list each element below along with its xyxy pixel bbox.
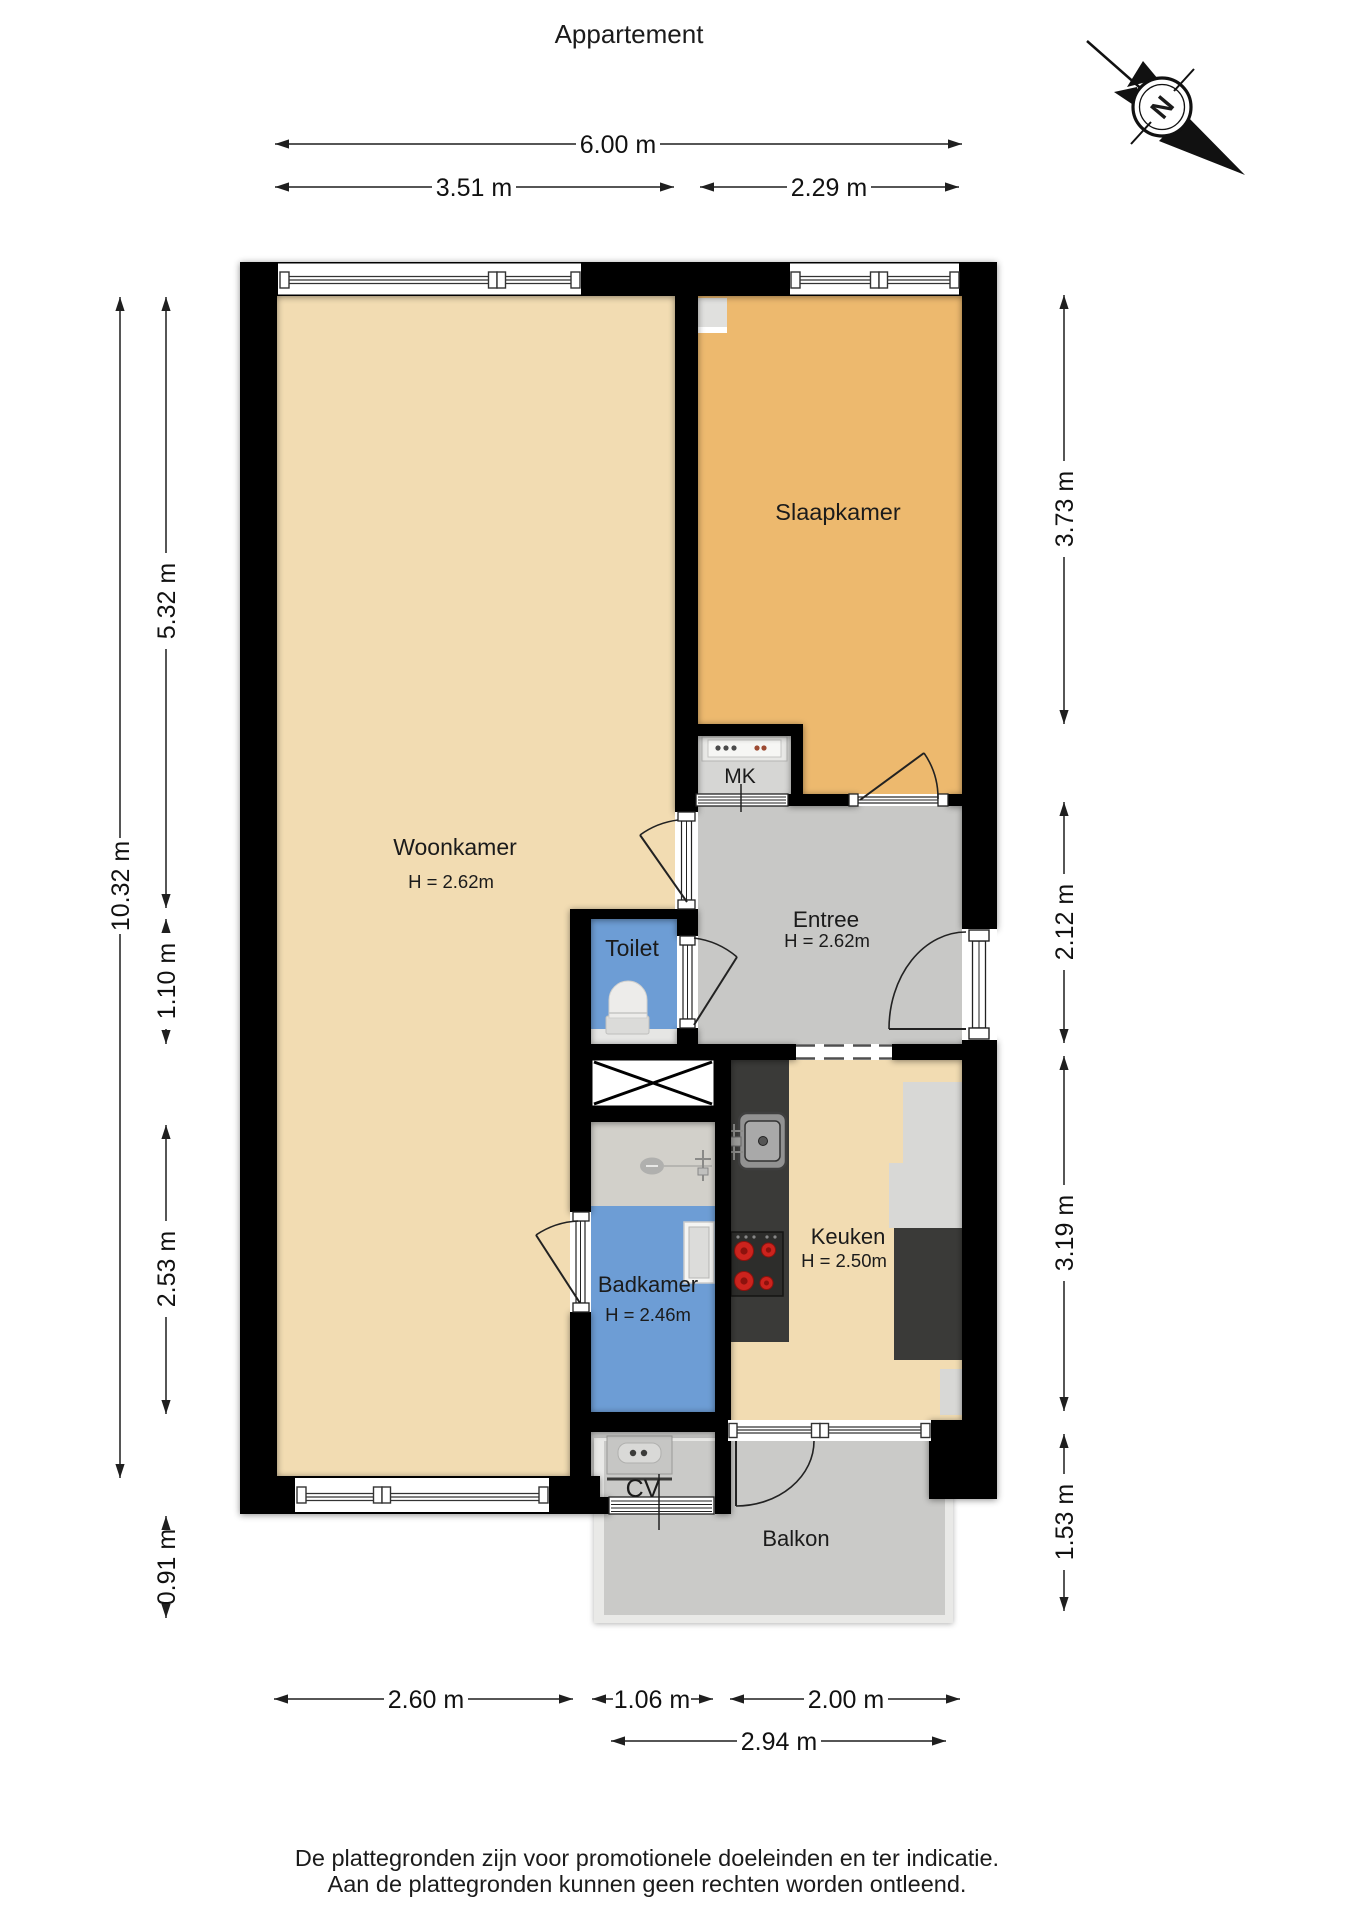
svg-text:Woonkamer: Woonkamer [393, 834, 517, 860]
svg-text:Badkamer: Badkamer [598, 1272, 698, 1297]
svg-text:3.73 m: 3.73 m [1051, 471, 1079, 547]
svg-text:2.12 m: 2.12 m [1051, 884, 1079, 960]
svg-text:2.60 m: 2.60 m [388, 1686, 464, 1714]
svg-text:2.00 m: 2.00 m [808, 1686, 884, 1714]
svg-text:10.32 m: 10.32 m [107, 841, 135, 931]
svg-text:Slaapkamer: Slaapkamer [775, 499, 901, 525]
svg-text:1.10 m: 1.10 m [153, 943, 181, 1019]
svg-text:0.91 m: 0.91 m [153, 1529, 181, 1605]
svg-text:2.29 m: 2.29 m [791, 174, 867, 202]
svg-text:Appartement: Appartement [555, 19, 705, 49]
svg-text:CV: CV [626, 1475, 661, 1503]
svg-text:Keuken: Keuken [811, 1224, 886, 1249]
svg-text:3.51 m: 3.51 m [436, 174, 512, 202]
svg-text:Balkon: Balkon [762, 1526, 829, 1551]
svg-text:H = 2.46m: H = 2.46m [605, 1304, 691, 1325]
svg-text:1.53 m: 1.53 m [1051, 1484, 1079, 1560]
svg-text:2.94 m: 2.94 m [741, 1728, 817, 1756]
svg-text:Toilet: Toilet [605, 935, 659, 961]
svg-text:5.32 m: 5.32 m [153, 563, 181, 639]
svg-text:3.19 m: 3.19 m [1051, 1195, 1079, 1271]
svg-text:Aan de plattegronden kunnen ge: Aan de plattegronden kunnen geen rechten… [328, 1871, 967, 1897]
svg-text:MK: MK [724, 765, 756, 788]
svg-text:H = 2.62m: H = 2.62m [408, 871, 494, 892]
svg-text:H = 2.50m: H = 2.50m [801, 1250, 887, 1271]
svg-text:2.53 m: 2.53 m [153, 1231, 181, 1307]
svg-text:Entree: Entree [793, 907, 859, 932]
svg-text:1.06 m: 1.06 m [614, 1686, 690, 1714]
svg-text:H = 2.62m: H = 2.62m [784, 930, 870, 951]
svg-text:6.00 m: 6.00 m [580, 131, 656, 159]
svg-text:De plattegronden zijn voor pro: De plattegronden zijn voor promotionele … [295, 1845, 999, 1871]
